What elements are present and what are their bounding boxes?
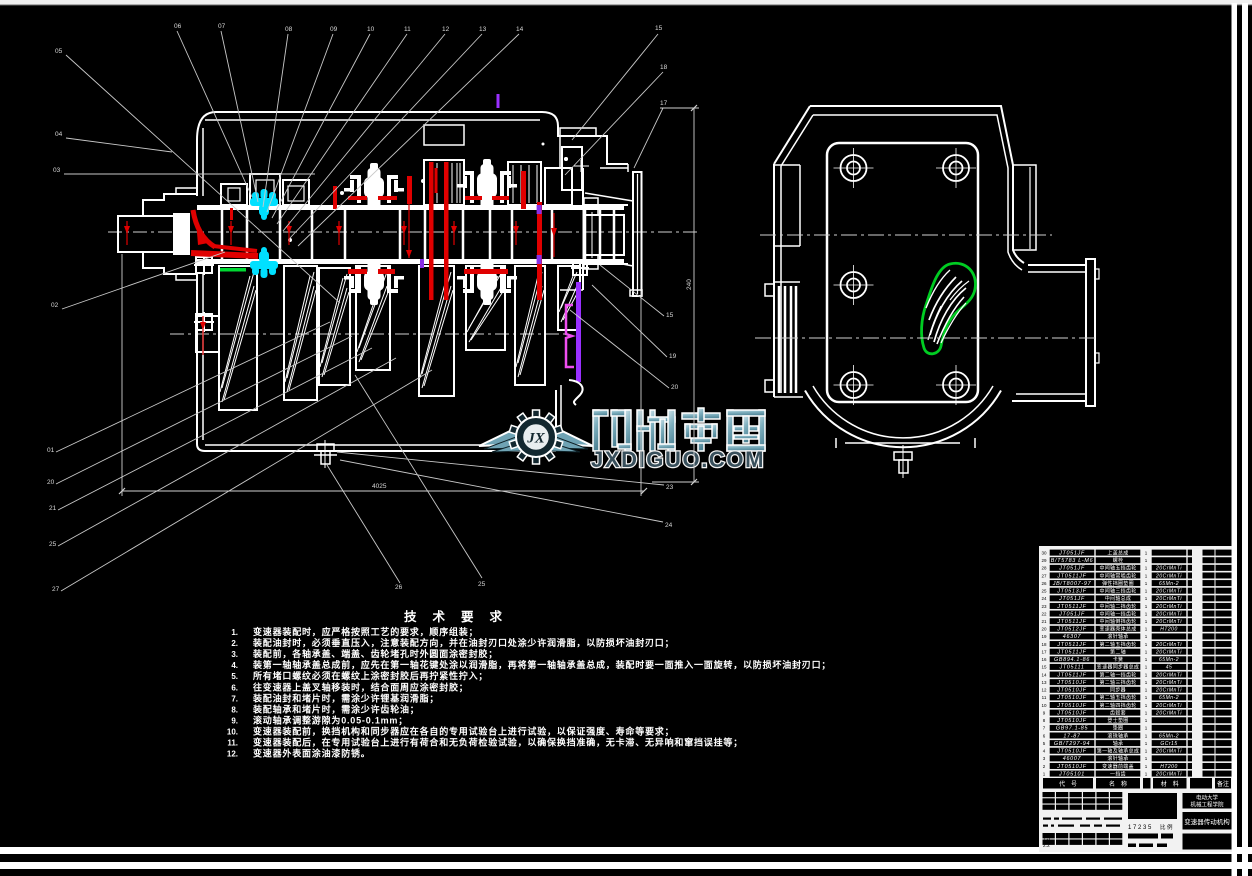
svg-text:GB97.1-85: GB97.1-85 bbox=[1056, 726, 1089, 732]
svg-text:12.: 12. bbox=[227, 750, 238, 759]
svg-text:滚针轴承: 滚针轴承 bbox=[1107, 633, 1128, 640]
svg-text:20CrMnTi: 20CrMnTi bbox=[1155, 703, 1182, 709]
svg-text:中间轴总成: 中间轴总成 bbox=[1105, 595, 1132, 602]
svg-text:20CrMnTi: 20CrMnTi bbox=[1155, 672, 1182, 678]
svg-text:JT051JF: JT051JF bbox=[1058, 566, 1085, 572]
svg-text:上盖总成: 上盖总成 bbox=[1107, 549, 1128, 556]
svg-text:1 7 2 3 5: 1 7 2 3 5 bbox=[1128, 825, 1152, 831]
svg-text:20CrMnTi: 20CrMnTi bbox=[1155, 589, 1182, 595]
svg-text:9.: 9. bbox=[231, 716, 238, 725]
svg-text:JT0511JF: JT0511JF bbox=[1056, 642, 1086, 648]
svg-text:JT051JF: JT051JF bbox=[1058, 596, 1085, 602]
svg-text:中间轴常啮齿轮: 中间轴常啮齿轮 bbox=[1099, 572, 1136, 579]
svg-text:27: 27 bbox=[1041, 573, 1047, 578]
svg-text:20: 20 bbox=[47, 479, 55, 486]
svg-text:电动大学: 电动大学 bbox=[1196, 794, 1219, 802]
svg-text:30: 30 bbox=[1041, 550, 1047, 555]
svg-text:18: 18 bbox=[1041, 642, 1047, 647]
svg-text:27: 27 bbox=[52, 586, 60, 593]
svg-text:29: 29 bbox=[1041, 558, 1047, 563]
svg-text:第一轴及轴承总成: 第一轴及轴承总成 bbox=[1097, 748, 1139, 755]
svg-text:46007: 46007 bbox=[1063, 756, 1082, 762]
svg-text:变速器同步器总成: 变速器同步器总成 bbox=[1097, 664, 1139, 671]
svg-text:22: 22 bbox=[1041, 611, 1047, 616]
svg-text:13: 13 bbox=[1041, 680, 1047, 685]
svg-text:17-87: 17-87 bbox=[1063, 733, 1081, 739]
svg-text:HT200: HT200 bbox=[1160, 764, 1178, 770]
svg-text:17: 17 bbox=[1041, 649, 1047, 654]
svg-text:65Mn-2: 65Mn-2 bbox=[1159, 657, 1179, 663]
svg-text:滚珠轴承: 滚珠轴承 bbox=[1107, 732, 1128, 739]
svg-text:16: 16 bbox=[1041, 657, 1047, 662]
svg-text:JT0511JF: JT0511JF bbox=[1056, 604, 1086, 610]
svg-text:JT0510JF: JT0510JF bbox=[1056, 688, 1087, 694]
svg-text:装配轴承和堵片时，需涂少许齿轮油；: 装配轴承和堵片时，需涂少许齿轮油； bbox=[252, 703, 420, 715]
svg-text:65Mn-2: 65Mn-2 bbox=[1159, 695, 1179, 701]
svg-text:19: 19 bbox=[669, 353, 677, 360]
svg-text:12: 12 bbox=[442, 26, 450, 33]
svg-text:JT0510JF: JT0510JF bbox=[1056, 703, 1087, 709]
svg-text:所有堵口螺纹必须在螺纹上涂密封胶后再拧紧性拧入；: 所有堵口螺纹必须在螺纹上涂密封胶后再拧紧性拧入； bbox=[253, 670, 488, 682]
svg-text:中间轴一挡齿轮: 中间轴一挡齿轮 bbox=[1099, 610, 1136, 617]
svg-text:18: 18 bbox=[660, 64, 668, 71]
svg-text:中间轴五挡齿轮: 中间轴五挡齿轮 bbox=[1099, 565, 1136, 572]
svg-text:05: 05 bbox=[55, 48, 63, 55]
svg-text:15: 15 bbox=[1041, 665, 1047, 670]
svg-text:滚动轴承调整游隙为0.05-0.1mm；: 滚动轴承调整游隙为0.05-0.1mm； bbox=[253, 714, 408, 726]
svg-text:25: 25 bbox=[1041, 589, 1047, 594]
svg-text:11: 11 bbox=[404, 26, 411, 33]
svg-text:JT0510JF: JT0510JF bbox=[1056, 695, 1087, 701]
svg-text:第二轴四挡齿轮: 第二轴四挡齿轮 bbox=[1099, 702, 1136, 709]
svg-text:JB/T8007-97: JB/T8007-97 bbox=[1052, 581, 1092, 587]
svg-text:23: 23 bbox=[666, 484, 674, 491]
svg-text:变速器传动机构: 变速器传动机构 bbox=[1184, 817, 1230, 826]
svg-text:01: 01 bbox=[47, 447, 55, 454]
svg-text:11.: 11. bbox=[227, 739, 238, 748]
svg-text:卡簧: 卡簧 bbox=[1113, 656, 1124, 663]
svg-text:25: 25 bbox=[478, 581, 486, 588]
svg-text:中间轴三挡齿轮: 中间轴三挡齿轮 bbox=[1099, 588, 1136, 595]
svg-text:14: 14 bbox=[1041, 672, 1047, 677]
svg-text:09: 09 bbox=[330, 26, 338, 33]
svg-text:10: 10 bbox=[1041, 703, 1047, 708]
svg-text:GCr15: GCr15 bbox=[1160, 741, 1177, 747]
svg-text:2.: 2. bbox=[231, 639, 238, 648]
svg-text:20CrMnTi: 20CrMnTi bbox=[1155, 649, 1182, 655]
svg-text:06: 06 bbox=[174, 23, 182, 30]
svg-text:13: 13 bbox=[479, 26, 487, 33]
svg-text:14: 14 bbox=[516, 26, 524, 33]
svg-text:07: 07 bbox=[218, 23, 226, 30]
svg-text:46307: 46307 bbox=[1063, 634, 1082, 640]
svg-text:20CrMnTi: 20CrMnTi bbox=[1155, 604, 1182, 610]
svg-text:JT0510JF: JT0510JF bbox=[1056, 764, 1087, 770]
svg-text:齿毂套: 齿毂套 bbox=[1110, 709, 1126, 716]
svg-text:JT051JF: JT051JF bbox=[1058, 611, 1085, 617]
svg-text:弹性挡圈垫圈: 弹性挡圈垫圈 bbox=[1102, 580, 1134, 587]
svg-text:JT0510JF: JT0510JF bbox=[1056, 749, 1087, 755]
svg-text:一挡齿: 一挡齿 bbox=[1110, 770, 1126, 777]
svg-text:26: 26 bbox=[395, 584, 403, 591]
svg-text:装配油封和堵片时，需涂少许锂基润滑脂；: 装配油封和堵片时，需涂少许锂基润滑脂； bbox=[252, 692, 439, 704]
svg-text:变速器外表面涂油漆防锈。: 变速器外表面涂油漆防锈。 bbox=[253, 748, 371, 759]
svg-text:20CrMnTi: 20CrMnTi bbox=[1155, 749, 1182, 755]
svg-text:装配油封时，必须垂直压入，注意装配方向，并在油封刃口处涂少许: 装配油封时，必须垂直压入，注意装配方向，并在油封刃口处涂少许润滑脂，以防损坏油封… bbox=[252, 637, 674, 649]
svg-text:10: 10 bbox=[367, 26, 375, 33]
svg-text:第二轴三挡齿轮: 第二轴三挡齿轮 bbox=[1099, 679, 1136, 686]
svg-text:B/T5783 L-M6: B/T5783 L-M6 bbox=[1051, 558, 1094, 564]
svg-text:20CrMnTi: 20CrMnTi bbox=[1155, 611, 1182, 617]
svg-text:1.: 1. bbox=[231, 628, 238, 637]
svg-text:15: 15 bbox=[655, 25, 663, 32]
svg-text:第二轴: 第二轴 bbox=[1110, 648, 1126, 655]
svg-text:JXDIGUO.COM: JXDIGUO.COM bbox=[591, 447, 765, 472]
svg-text:24: 24 bbox=[1041, 596, 1047, 601]
svg-text:10.: 10. bbox=[227, 727, 238, 736]
svg-text:HT200: HT200 bbox=[1160, 627, 1178, 633]
svg-text:JT05101: JT05101 bbox=[1058, 771, 1085, 777]
svg-text:装第一轴轴承盖总成前，应先在第一轴花键处涂以润滑脂，再将第一: 装第一轴轴承盖总成前，应先在第一轴花键处涂以润滑脂，再将第一轴轴承盖总成，装配时… bbox=[252, 659, 831, 671]
svg-text:20CrMnTi: 20CrMnTi bbox=[1155, 688, 1182, 694]
svg-text:20CrMnTi: 20CrMnTi bbox=[1155, 596, 1182, 602]
svg-text:备注: 备注 bbox=[1217, 780, 1229, 788]
svg-text:6.: 6. bbox=[231, 683, 238, 692]
svg-text:65Mn-2: 65Mn-2 bbox=[1159, 581, 1179, 587]
svg-text:21: 21 bbox=[49, 505, 57, 512]
svg-text:04: 04 bbox=[55, 131, 63, 138]
svg-text:20: 20 bbox=[1041, 627, 1047, 632]
svg-text:21: 21 bbox=[1041, 619, 1047, 624]
svg-text:JT0511JF: JT0511JF bbox=[1056, 672, 1086, 678]
svg-text:7.3: 7.3 bbox=[1043, 836, 1050, 842]
svg-text:20CrMnTi: 20CrMnTi bbox=[1155, 573, 1182, 579]
svg-text:往变速器上盖叉轴移装时，结合面周应涂密封胶；: 往变速器上盖叉轴移装时，结合面周应涂密封胶； bbox=[253, 681, 469, 693]
svg-text:第二轴一挡齿轮: 第二轴一挡齿轮 bbox=[1099, 671, 1136, 678]
svg-text:JT0510JF: JT0510JF bbox=[1056, 680, 1087, 686]
svg-text:03: 03 bbox=[53, 167, 61, 174]
svg-text:同步器: 同步器 bbox=[1110, 688, 1126, 694]
svg-text:轴承: 轴承 bbox=[1113, 740, 1124, 747]
svg-text:JT05111: JT05111 bbox=[1058, 665, 1084, 671]
svg-text:JT0512JF: JT0512JF bbox=[1056, 627, 1087, 633]
svg-text:变速器装配后，在专用试验台上进行有荷合和无负荷检验试验，以确: 变速器装配后，在专用试验台上进行有荷合和无负荷检验试验，以确保换挡准确，无卡滞、… bbox=[253, 737, 743, 749]
svg-text:第二轴五挡齿轮: 第二轴五挡齿轮 bbox=[1099, 641, 1136, 648]
svg-text:登士垫圈: 登士垫圈 bbox=[1107, 717, 1128, 724]
svg-text:JT0511JF: JT0511JF bbox=[1056, 573, 1086, 579]
svg-text:滚针轴承: 滚针轴承 bbox=[1107, 755, 1128, 762]
svg-text:45: 45 bbox=[1166, 665, 1173, 671]
svg-text:螺栓: 螺栓 bbox=[1113, 557, 1124, 564]
svg-text:2.2: 2.2 bbox=[1043, 843, 1050, 849]
svg-text:JT0513JF: JT0513JF bbox=[1056, 589, 1087, 595]
svg-text:JT0511JF: JT0511JF bbox=[1056, 649, 1086, 655]
svg-text:JT0511JF: JT0511JF bbox=[1056, 619, 1086, 625]
svg-text:24: 24 bbox=[665, 522, 673, 529]
svg-text:4.: 4. bbox=[231, 661, 238, 670]
svg-text:20CrMnTi: 20CrMnTi bbox=[1155, 566, 1182, 572]
svg-text:20CrMnTi: 20CrMnTi bbox=[1155, 680, 1182, 686]
svg-text:4025: 4025 bbox=[372, 483, 387, 490]
svg-text:20CrMnTi: 20CrMnTi bbox=[1155, 710, 1182, 716]
svg-text:17: 17 bbox=[660, 100, 668, 107]
svg-text:3.: 3. bbox=[231, 650, 238, 659]
svg-text:20CrMnTi: 20CrMnTi bbox=[1155, 771, 1182, 777]
svg-text:第二轴五挡齿轮: 第二轴五挡齿轮 bbox=[1099, 694, 1136, 701]
svg-text:8.: 8. bbox=[231, 705, 238, 714]
svg-text:GB/T297-94: GB/T297-94 bbox=[1054, 741, 1090, 747]
svg-text:20: 20 bbox=[671, 384, 679, 391]
svg-text:02: 02 bbox=[51, 302, 59, 309]
svg-text:JT0510JF: JT0510JF bbox=[1056, 710, 1087, 716]
svg-text:机械工程学院: 机械工程学院 bbox=[1190, 801, 1224, 809]
svg-text:12: 12 bbox=[1041, 688, 1047, 693]
svg-text:变速器壳体总成: 变速器壳体总成 bbox=[1099, 626, 1136, 633]
svg-text:08: 08 bbox=[285, 26, 293, 33]
svg-text:JT0510JF: JT0510JF bbox=[1056, 718, 1087, 724]
svg-text:20CrMnTi: 20CrMnTi bbox=[1155, 642, 1182, 648]
svg-text:25: 25 bbox=[49, 541, 57, 548]
svg-text:装配前，各轴承盖、端盖、齿轮堵孔时外圆面涂密封胶；: 装配前，各轴承盖、端盖、齿轮堵孔时外圆面涂密封胶； bbox=[252, 648, 498, 660]
svg-text:变速器装配前，换挡机构和同步器应在各自的专用试验台上进行试验: 变速器装配前，换挡机构和同步器应在各自的专用试验台上进行试验，以保证强度、寿命等… bbox=[253, 725, 674, 737]
svg-text:7.: 7. bbox=[231, 694, 238, 703]
svg-text:名 称: 名 称 bbox=[1109, 780, 1127, 788]
svg-text:23: 23 bbox=[1041, 604, 1047, 609]
svg-text:26: 26 bbox=[1041, 581, 1047, 586]
svg-text:材 料: 材 料 bbox=[1161, 780, 1179, 788]
svg-text:11: 11 bbox=[1042, 695, 1047, 700]
svg-text:28: 28 bbox=[1041, 566, 1047, 571]
svg-text:技术要求: 技术要求 bbox=[404, 609, 518, 624]
svg-text:JX: JX bbox=[526, 431, 546, 447]
svg-text:20CrMnTi: 20CrMnTi bbox=[1155, 619, 1182, 625]
svg-text:变速器装配时，应严格按照工艺的要求，顺序组装；: 变速器装配时，应严格按照工艺的要求，顺序组装； bbox=[253, 626, 478, 638]
svg-text:代 号: 代 号 bbox=[1059, 780, 1077, 788]
svg-text:中间轴倒挡齿轮: 中间轴倒挡齿轮 bbox=[1099, 618, 1136, 625]
svg-text:15: 15 bbox=[666, 312, 674, 319]
svg-text:垫圈: 垫圈 bbox=[1113, 725, 1124, 732]
svg-text:65Mn-2: 65Mn-2 bbox=[1159, 733, 1179, 739]
svg-text:中间轴二挡齿轮: 中间轴二挡齿轮 bbox=[1099, 603, 1136, 610]
svg-text:比 例: 比 例 bbox=[1160, 823, 1173, 831]
svg-text:240: 240 bbox=[686, 279, 693, 290]
svg-text:19: 19 bbox=[1041, 634, 1047, 639]
svg-text:变速器前端盖: 变速器前端盖 bbox=[1102, 763, 1134, 770]
svg-text:JT051JF: JT051JF bbox=[1058, 550, 1085, 556]
svg-text:5.: 5. bbox=[231, 672, 238, 681]
svg-text:GB894.1-86: GB894.1-86 bbox=[1054, 657, 1090, 663]
